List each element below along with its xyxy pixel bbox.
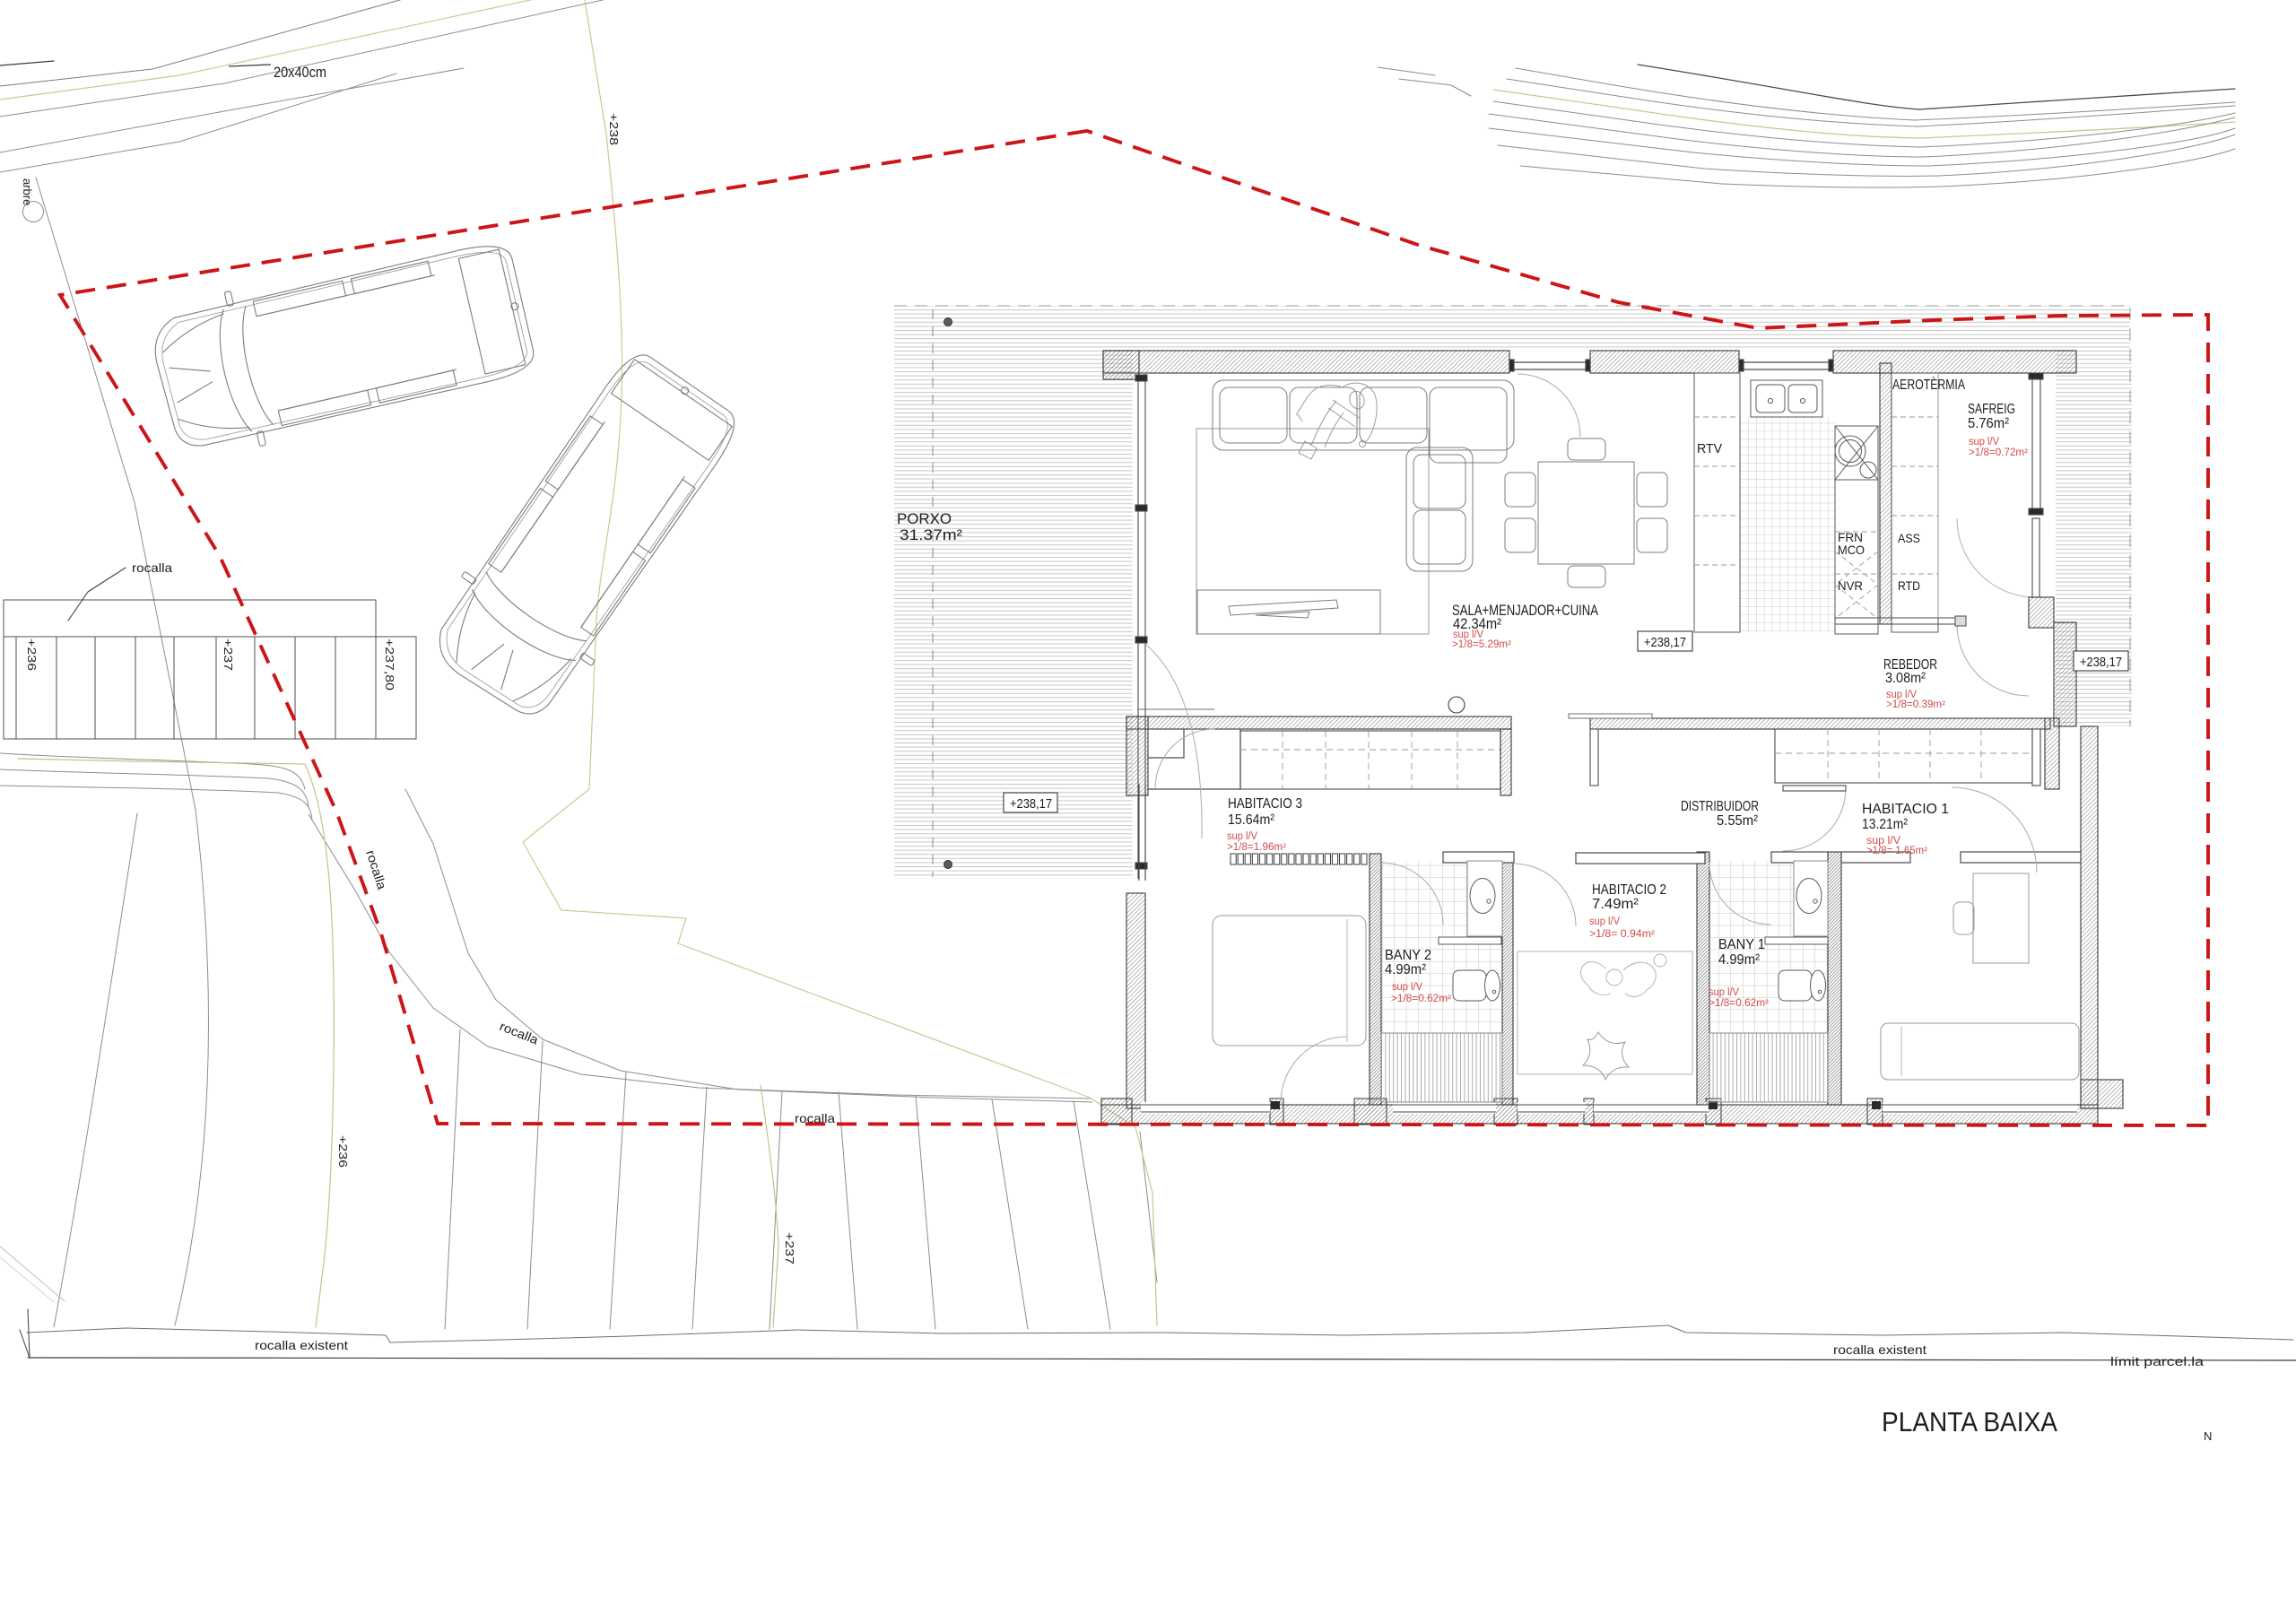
svg-text:sup l/V: sup l/V [1227, 831, 1257, 842]
svg-text:5.76m²: 5.76m² [1968, 416, 2010, 431]
svg-text:MCO: MCO [1838, 543, 1865, 557]
svg-text:+237: +237 [222, 638, 235, 671]
svg-text:BANY 2: BANY 2 [1385, 948, 1431, 963]
svg-text:4.99m²: 4.99m² [1385, 962, 1427, 977]
svg-text:rocalla existent: rocalla existent [255, 1338, 348, 1352]
svg-text:5.55m²: 5.55m² [1717, 813, 1759, 829]
svg-text:sup l/V: sup l/V [1969, 437, 1999, 447]
svg-text:rocalla existent: rocalla existent [1833, 1342, 1926, 1357]
svg-text:>1/8=1.96m²: >1/8=1.96m² [1227, 842, 1286, 853]
svg-text:PLANTA BAIXA: PLANTA BAIXA [1882, 1406, 2057, 1437]
svg-text:sup l/V: sup l/V [1392, 982, 1422, 993]
svg-text:ASS: ASS [1898, 531, 1920, 545]
svg-text:arbre: arbre [21, 178, 34, 205]
svg-text:>1/8= 0.94m²: >1/8= 0.94m² [1589, 929, 1655, 940]
svg-text:20x40cm: 20x40cm [274, 64, 326, 81]
svg-text:rocalla: rocalla [132, 560, 172, 575]
svg-text:4.99m²: 4.99m² [1718, 952, 1761, 968]
svg-text:3.08m²: 3.08m² [1885, 671, 1926, 686]
svg-text:PORXO: PORXO [897, 510, 952, 527]
svg-text:HABITACIO 2: HABITACIO 2 [1592, 882, 1666, 898]
svg-text:BANY 1: BANY 1 [1718, 937, 1765, 952]
svg-text:AEROTÈRMIA: AEROTÈRMIA [1892, 378, 1966, 393]
svg-text:+236: +236 [25, 638, 39, 671]
svg-text:RTD: RTD [1898, 578, 1920, 593]
svg-text:31.37m²: 31.37m² [900, 526, 962, 543]
svg-text:+237,80: +237,80 [383, 638, 396, 690]
svg-text:>1/8=0.72m²: >1/8=0.72m² [1969, 447, 2028, 458]
svg-text:+238,17: +238,17 [1644, 635, 1686, 650]
svg-text:>1/8=0.62m²: >1/8=0.62m² [1709, 998, 1769, 1009]
svg-text:7.49m²: 7.49m² [1592, 897, 1639, 912]
svg-text:>1/8=0.62m²: >1/8=0.62m² [1391, 994, 1451, 1004]
svg-text:N: N [2204, 1429, 2212, 1443]
svg-text:+236: +236 [336, 1135, 350, 1168]
svg-text:RTV: RTV [1697, 441, 1722, 456]
svg-text:NVR: NVR [1838, 578, 1863, 593]
svg-text:>1/8=5.29m²: >1/8=5.29m² [1452, 639, 1511, 650]
svg-text:13.21m²: 13.21m² [1862, 817, 1909, 832]
svg-text:+238: +238 [607, 113, 621, 145]
svg-text:HABITACIO 3: HABITACIO 3 [1228, 796, 1302, 812]
svg-text:+238,17: +238,17 [2080, 655, 2122, 670]
svg-text:límit parcel.la: límit parcel.la [2110, 1354, 2204, 1368]
svg-text:DISTRIBUIDOR: DISTRIBUIDOR [1681, 799, 1759, 814]
svg-text:sup l/V: sup l/V [1709, 987, 1739, 998]
svg-text:>1/8= 1.65m²: >1/8= 1.65m² [1866, 846, 1927, 856]
svg-text:>1/8=0.39m²: >1/8=0.39m² [1886, 699, 1945, 710]
svg-text:+237: +237 [783, 1232, 796, 1264]
svg-text:SAFREIG: SAFREIG [1968, 402, 2015, 417]
svg-text:HABITACIO 1: HABITACIO 1 [1862, 802, 1949, 817]
svg-text:sup l/V: sup l/V [1589, 916, 1620, 927]
svg-text:+238,17: +238,17 [1010, 796, 1052, 812]
svg-text:rocalla: rocalla [795, 1111, 835, 1125]
svg-text:15.64m²: 15.64m² [1228, 812, 1275, 828]
